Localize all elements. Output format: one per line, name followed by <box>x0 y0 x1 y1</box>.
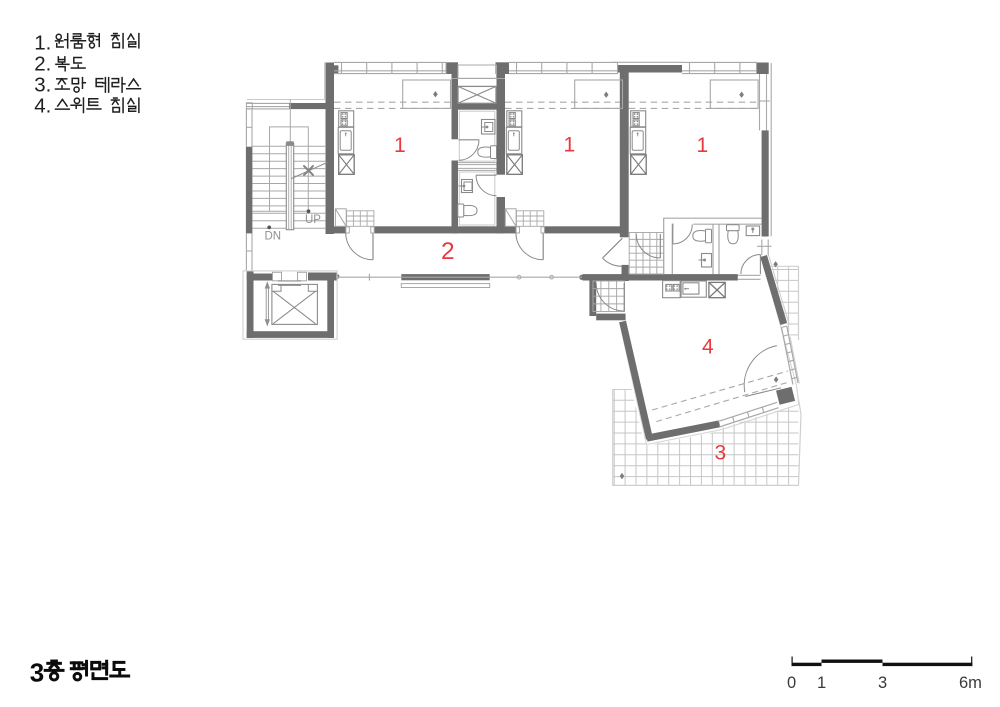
svg-text:DN: DN <box>265 231 282 243</box>
svg-text:3: 3 <box>878 674 887 692</box>
svg-text:4: 4 <box>702 336 714 359</box>
svg-text:2.: 2. <box>34 53 51 76</box>
svg-text:1: 1 <box>817 674 826 692</box>
svg-text:1: 1 <box>697 134 709 157</box>
svg-text:1: 1 <box>394 134 406 157</box>
svg-text:3.: 3. <box>34 73 51 96</box>
svg-text:UP: UP <box>305 214 321 226</box>
svg-text:3: 3 <box>715 442 727 465</box>
svg-text:3: 3 <box>30 657 44 687</box>
svg-text:2: 2 <box>441 238 455 265</box>
svg-text:4.: 4. <box>34 95 51 118</box>
svg-text:1: 1 <box>564 134 576 157</box>
svg-text:0: 0 <box>787 674 796 692</box>
svg-text:6m: 6m <box>959 674 982 692</box>
svg-text:1.: 1. <box>34 31 51 54</box>
